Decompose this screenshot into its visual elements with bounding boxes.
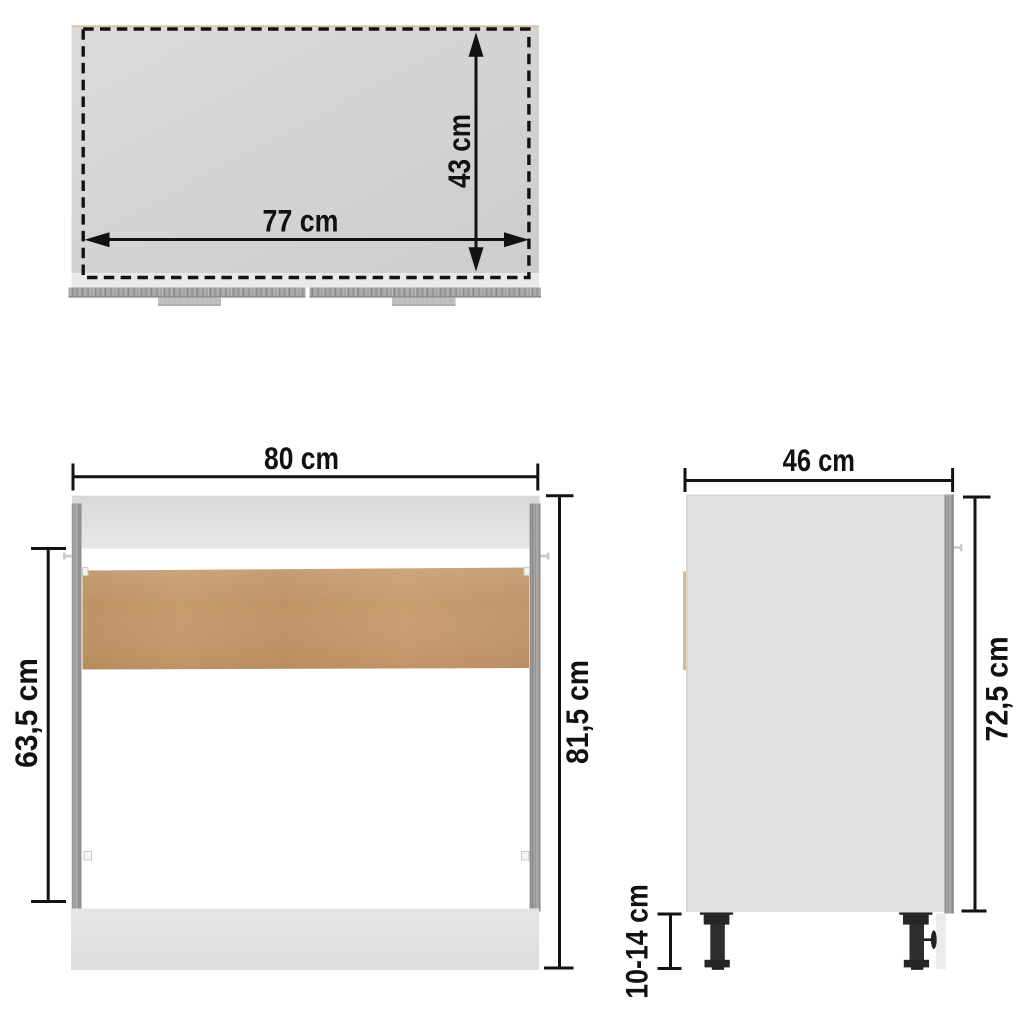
svg-text:46 cm: 46 cm xyxy=(783,444,855,479)
svg-text:80 cm: 80 cm xyxy=(264,442,339,477)
svg-text:43 cm: 43 cm xyxy=(443,114,478,188)
svg-text:81,5 cm: 81,5 cm xyxy=(561,660,596,764)
svg-text:63,5 cm: 63,5 cm xyxy=(8,658,44,768)
svg-text:72,5 cm: 72,5 cm xyxy=(980,636,1015,741)
svg-text:10-14 cm: 10-14 cm xyxy=(621,884,655,999)
svg-text:77 cm: 77 cm xyxy=(263,205,339,239)
